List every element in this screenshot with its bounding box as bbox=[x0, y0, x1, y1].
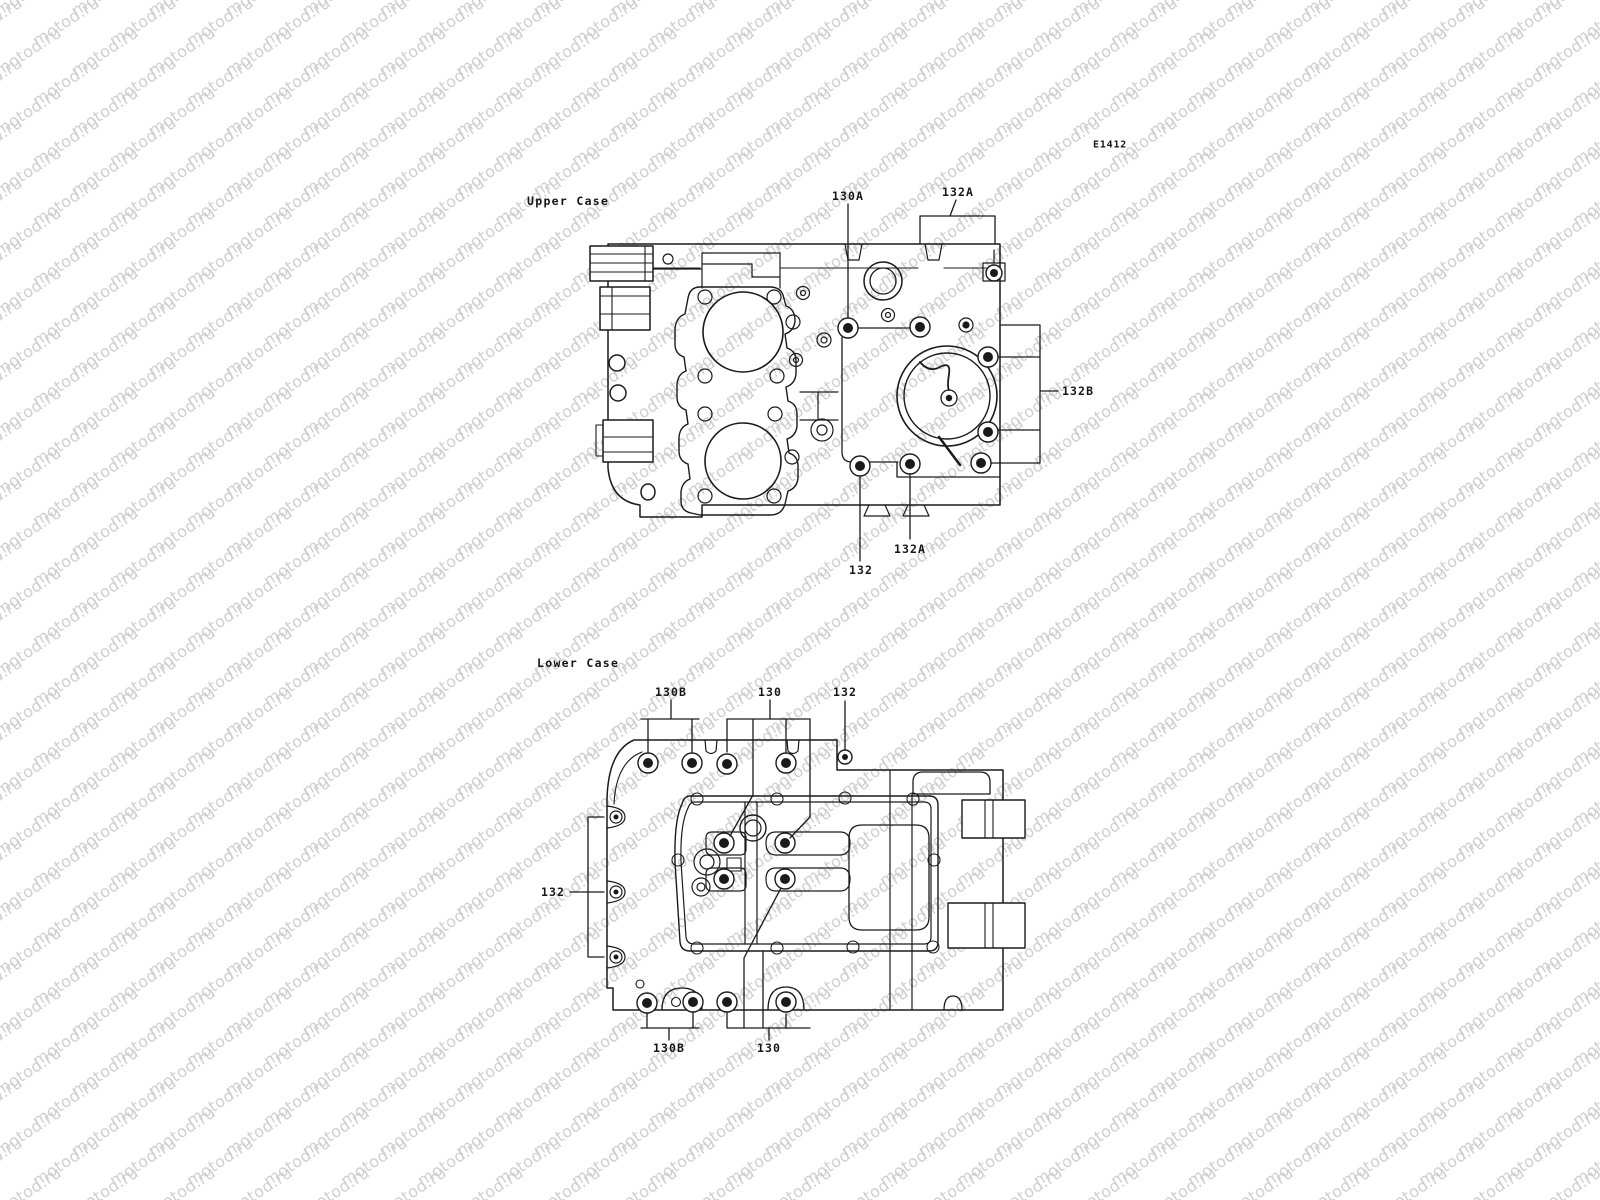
callout-label-132b-right: 132B bbox=[1062, 384, 1094, 398]
callout-label-130-bottom: 130 bbox=[757, 1041, 781, 1055]
lower-case-outline bbox=[607, 740, 1003, 1010]
upper-case-title: Upper Case bbox=[527, 194, 609, 208]
callout-label-132a-bottom: 132A bbox=[894, 542, 926, 556]
lower-case-title: Lower Case bbox=[537, 656, 619, 670]
engine-code: E1412 bbox=[1093, 140, 1127, 151]
callout-label-130b-top: 130B bbox=[655, 685, 687, 699]
callout-label-132-top: 132 bbox=[833, 685, 857, 699]
callout-label-132-left: 132 bbox=[541, 885, 565, 899]
cylinder-bore bbox=[705, 423, 781, 499]
callout-label-132-bottom: 132 bbox=[849, 563, 873, 577]
callout-label-130-top: 130 bbox=[758, 685, 782, 699]
upper-case-outline bbox=[608, 244, 1000, 517]
bolt-points-upper bbox=[838, 265, 1002, 476]
lower-case-drawing bbox=[570, 700, 1025, 1040]
cylinder-gasket-outline bbox=[675, 287, 798, 515]
callout-label-132a-top: 132A bbox=[942, 185, 974, 199]
upper-case-drawing bbox=[590, 200, 1058, 561]
mount-block bbox=[600, 287, 650, 330]
diagram-canvas: E1412 Upper Case 130A 132A 132B 132A 132… bbox=[0, 0, 1600, 1200]
pan-gasket-outline bbox=[675, 796, 938, 951]
callout-label-130a-top: 130A bbox=[832, 189, 864, 203]
upper-callout-leaders bbox=[848, 200, 995, 561]
parts-diagram-page: motod.rumotod.rumotod.rumotod.rumotod.ru… bbox=[0, 0, 1600, 1200]
mount-block bbox=[603, 420, 653, 462]
callout-label-130b-bottom: 130B bbox=[653, 1041, 685, 1055]
cylinder-bore bbox=[703, 292, 783, 372]
